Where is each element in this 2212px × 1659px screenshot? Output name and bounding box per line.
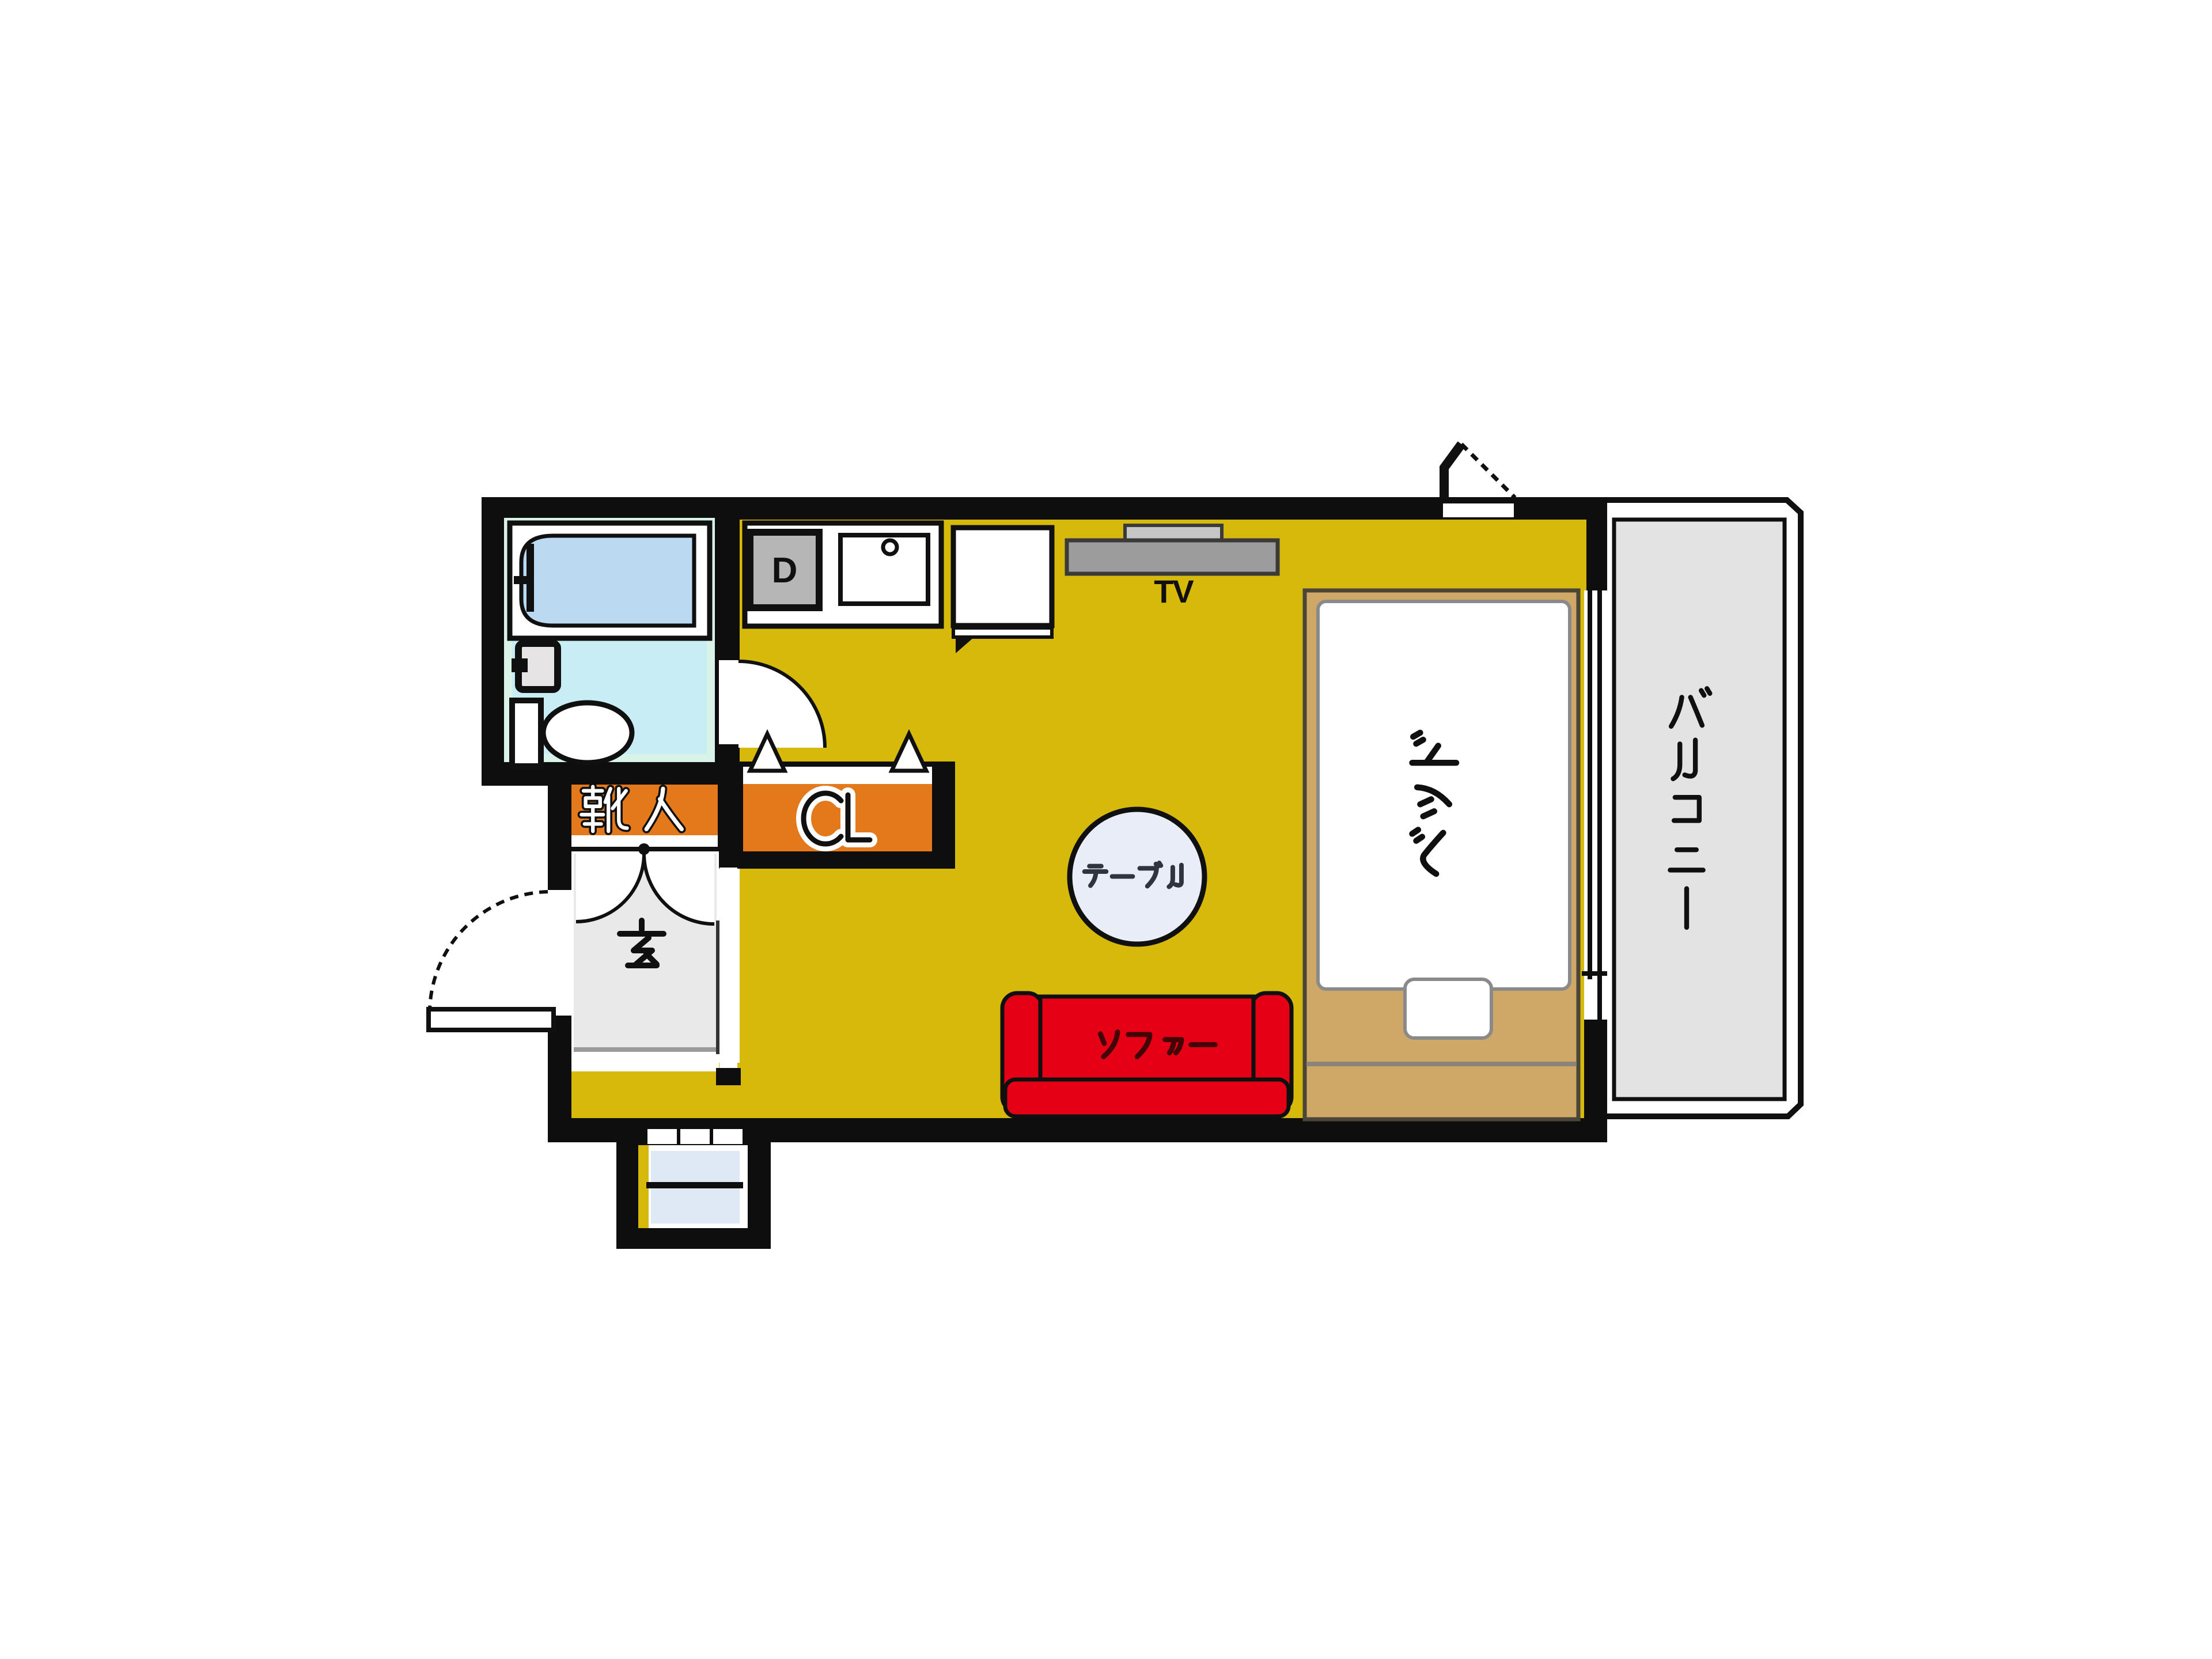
svg-text:TV: TV <box>1154 573 1194 609</box>
svg-text:D: D <box>772 551 798 590</box>
